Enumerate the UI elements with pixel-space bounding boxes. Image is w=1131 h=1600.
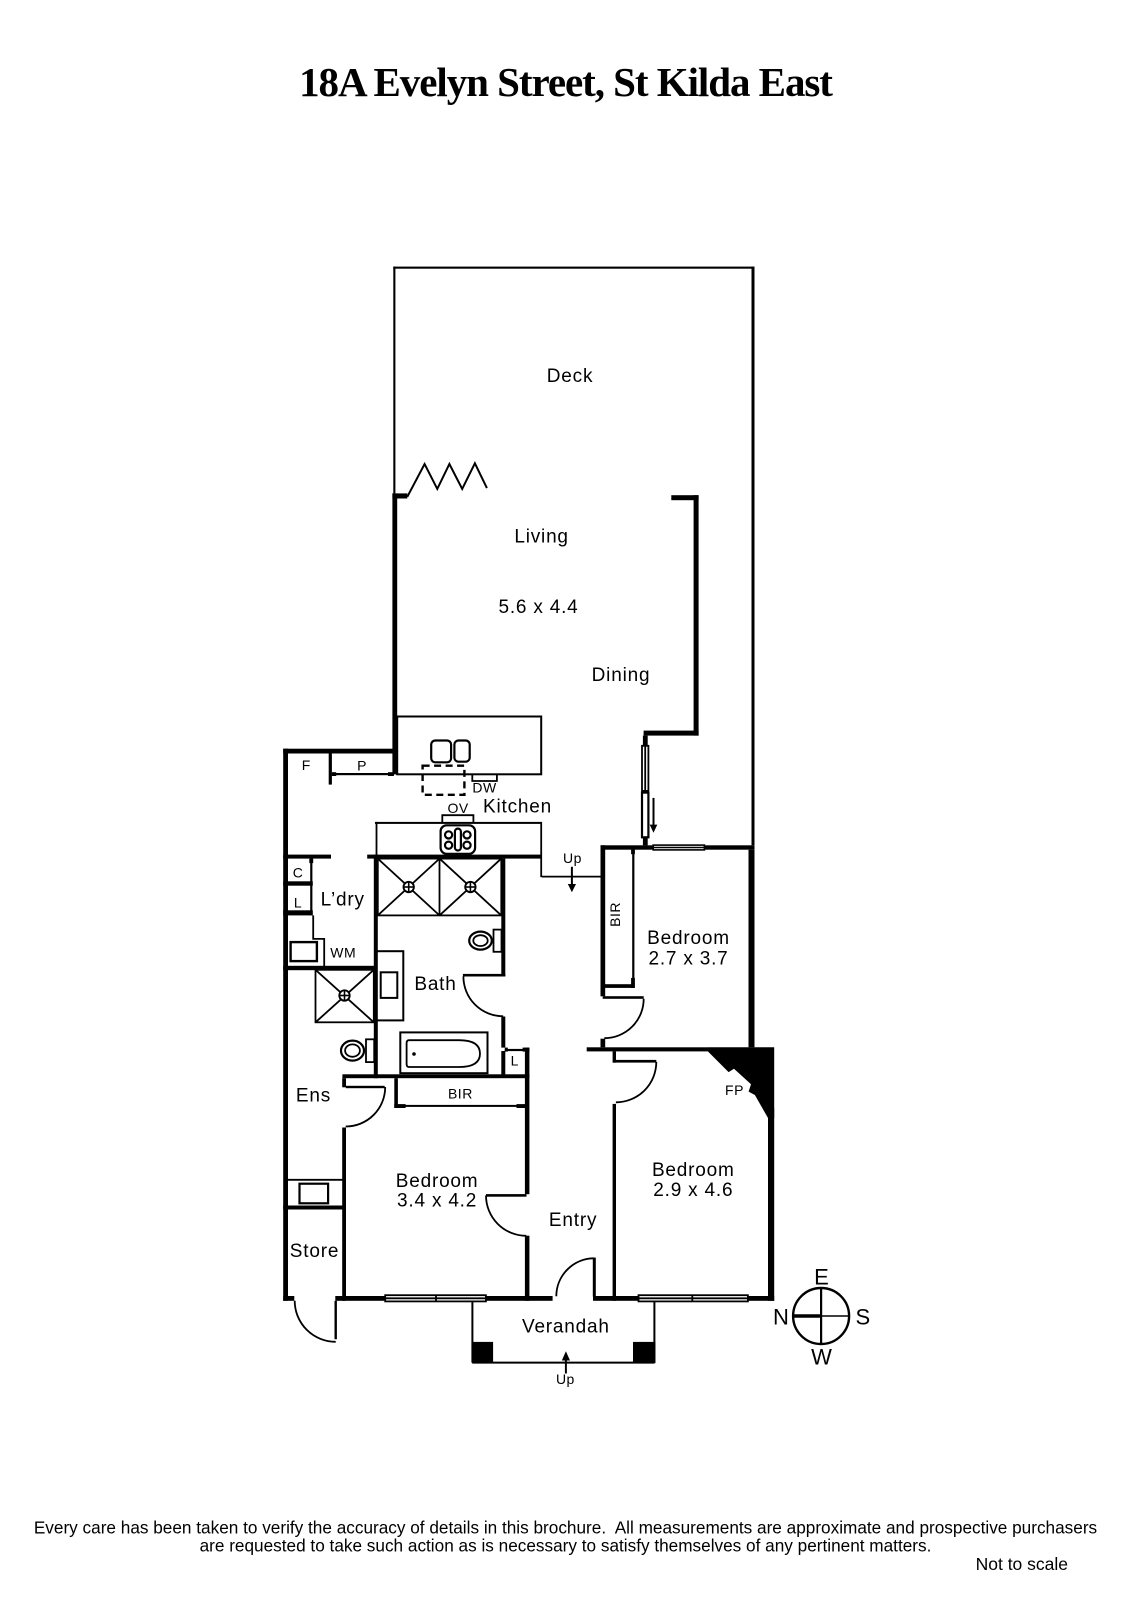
svg-text:Kitchen: Kitchen xyxy=(483,797,552,818)
svg-text:2.7 x 3.7: 2.7 x 3.7 xyxy=(648,949,728,970)
svg-text:Dining: Dining xyxy=(592,665,651,686)
svg-text:Bedroom: Bedroom xyxy=(396,1171,479,1192)
svg-text:P: P xyxy=(357,758,367,774)
svg-text:Living: Living xyxy=(514,527,568,548)
svg-text:Bedroom: Bedroom xyxy=(647,928,730,949)
svg-text:Ens: Ens xyxy=(296,1086,331,1107)
svg-text:OV: OV xyxy=(447,800,468,816)
svg-text:18A Evelyn Street, St Kilda Ea: 18A Evelyn Street, St Kilda East xyxy=(299,59,833,105)
svg-text:Every care has been taken to v: Every care has been taken to verify the … xyxy=(34,1518,1097,1538)
svg-text:L’dry: L’dry xyxy=(321,890,365,911)
svg-text:Bedroom: Bedroom xyxy=(652,1160,735,1181)
svg-text:5.6 x 4.4: 5.6 x 4.4 xyxy=(498,597,578,618)
svg-text:L: L xyxy=(511,1053,519,1069)
svg-text:C: C xyxy=(293,865,304,881)
svg-text:Bath: Bath xyxy=(414,974,456,995)
svg-text:2.9 x 4.6: 2.9 x 4.6 xyxy=(653,1180,733,1201)
svg-text:Up: Up xyxy=(556,1371,575,1387)
svg-text:BIR: BIR xyxy=(448,1086,473,1102)
svg-text:W: W xyxy=(811,1345,832,1370)
svg-text:F: F xyxy=(302,757,311,773)
svg-text:Up: Up xyxy=(563,850,582,866)
svg-text:WM: WM xyxy=(330,945,356,961)
svg-text:Verandah: Verandah xyxy=(522,1317,610,1338)
svg-text:3.4 x 4.2: 3.4 x 4.2 xyxy=(397,1191,477,1212)
svg-text:Store: Store xyxy=(290,1241,339,1262)
svg-text:DW: DW xyxy=(472,780,497,796)
svg-text:are requested to take such act: are requested to take such action as is … xyxy=(200,1536,932,1556)
svg-text:L: L xyxy=(294,895,302,911)
svg-text:Not to scale: Not to scale xyxy=(976,1554,1068,1574)
svg-text:BIR: BIR xyxy=(607,902,623,927)
svg-text:N: N xyxy=(773,1305,789,1330)
svg-text:Deck: Deck xyxy=(547,366,594,387)
svg-text:S: S xyxy=(855,1305,870,1330)
svg-text:Entry: Entry xyxy=(549,1210,597,1231)
svg-text:E: E xyxy=(814,1265,829,1290)
svg-text:FP: FP xyxy=(725,1082,744,1098)
